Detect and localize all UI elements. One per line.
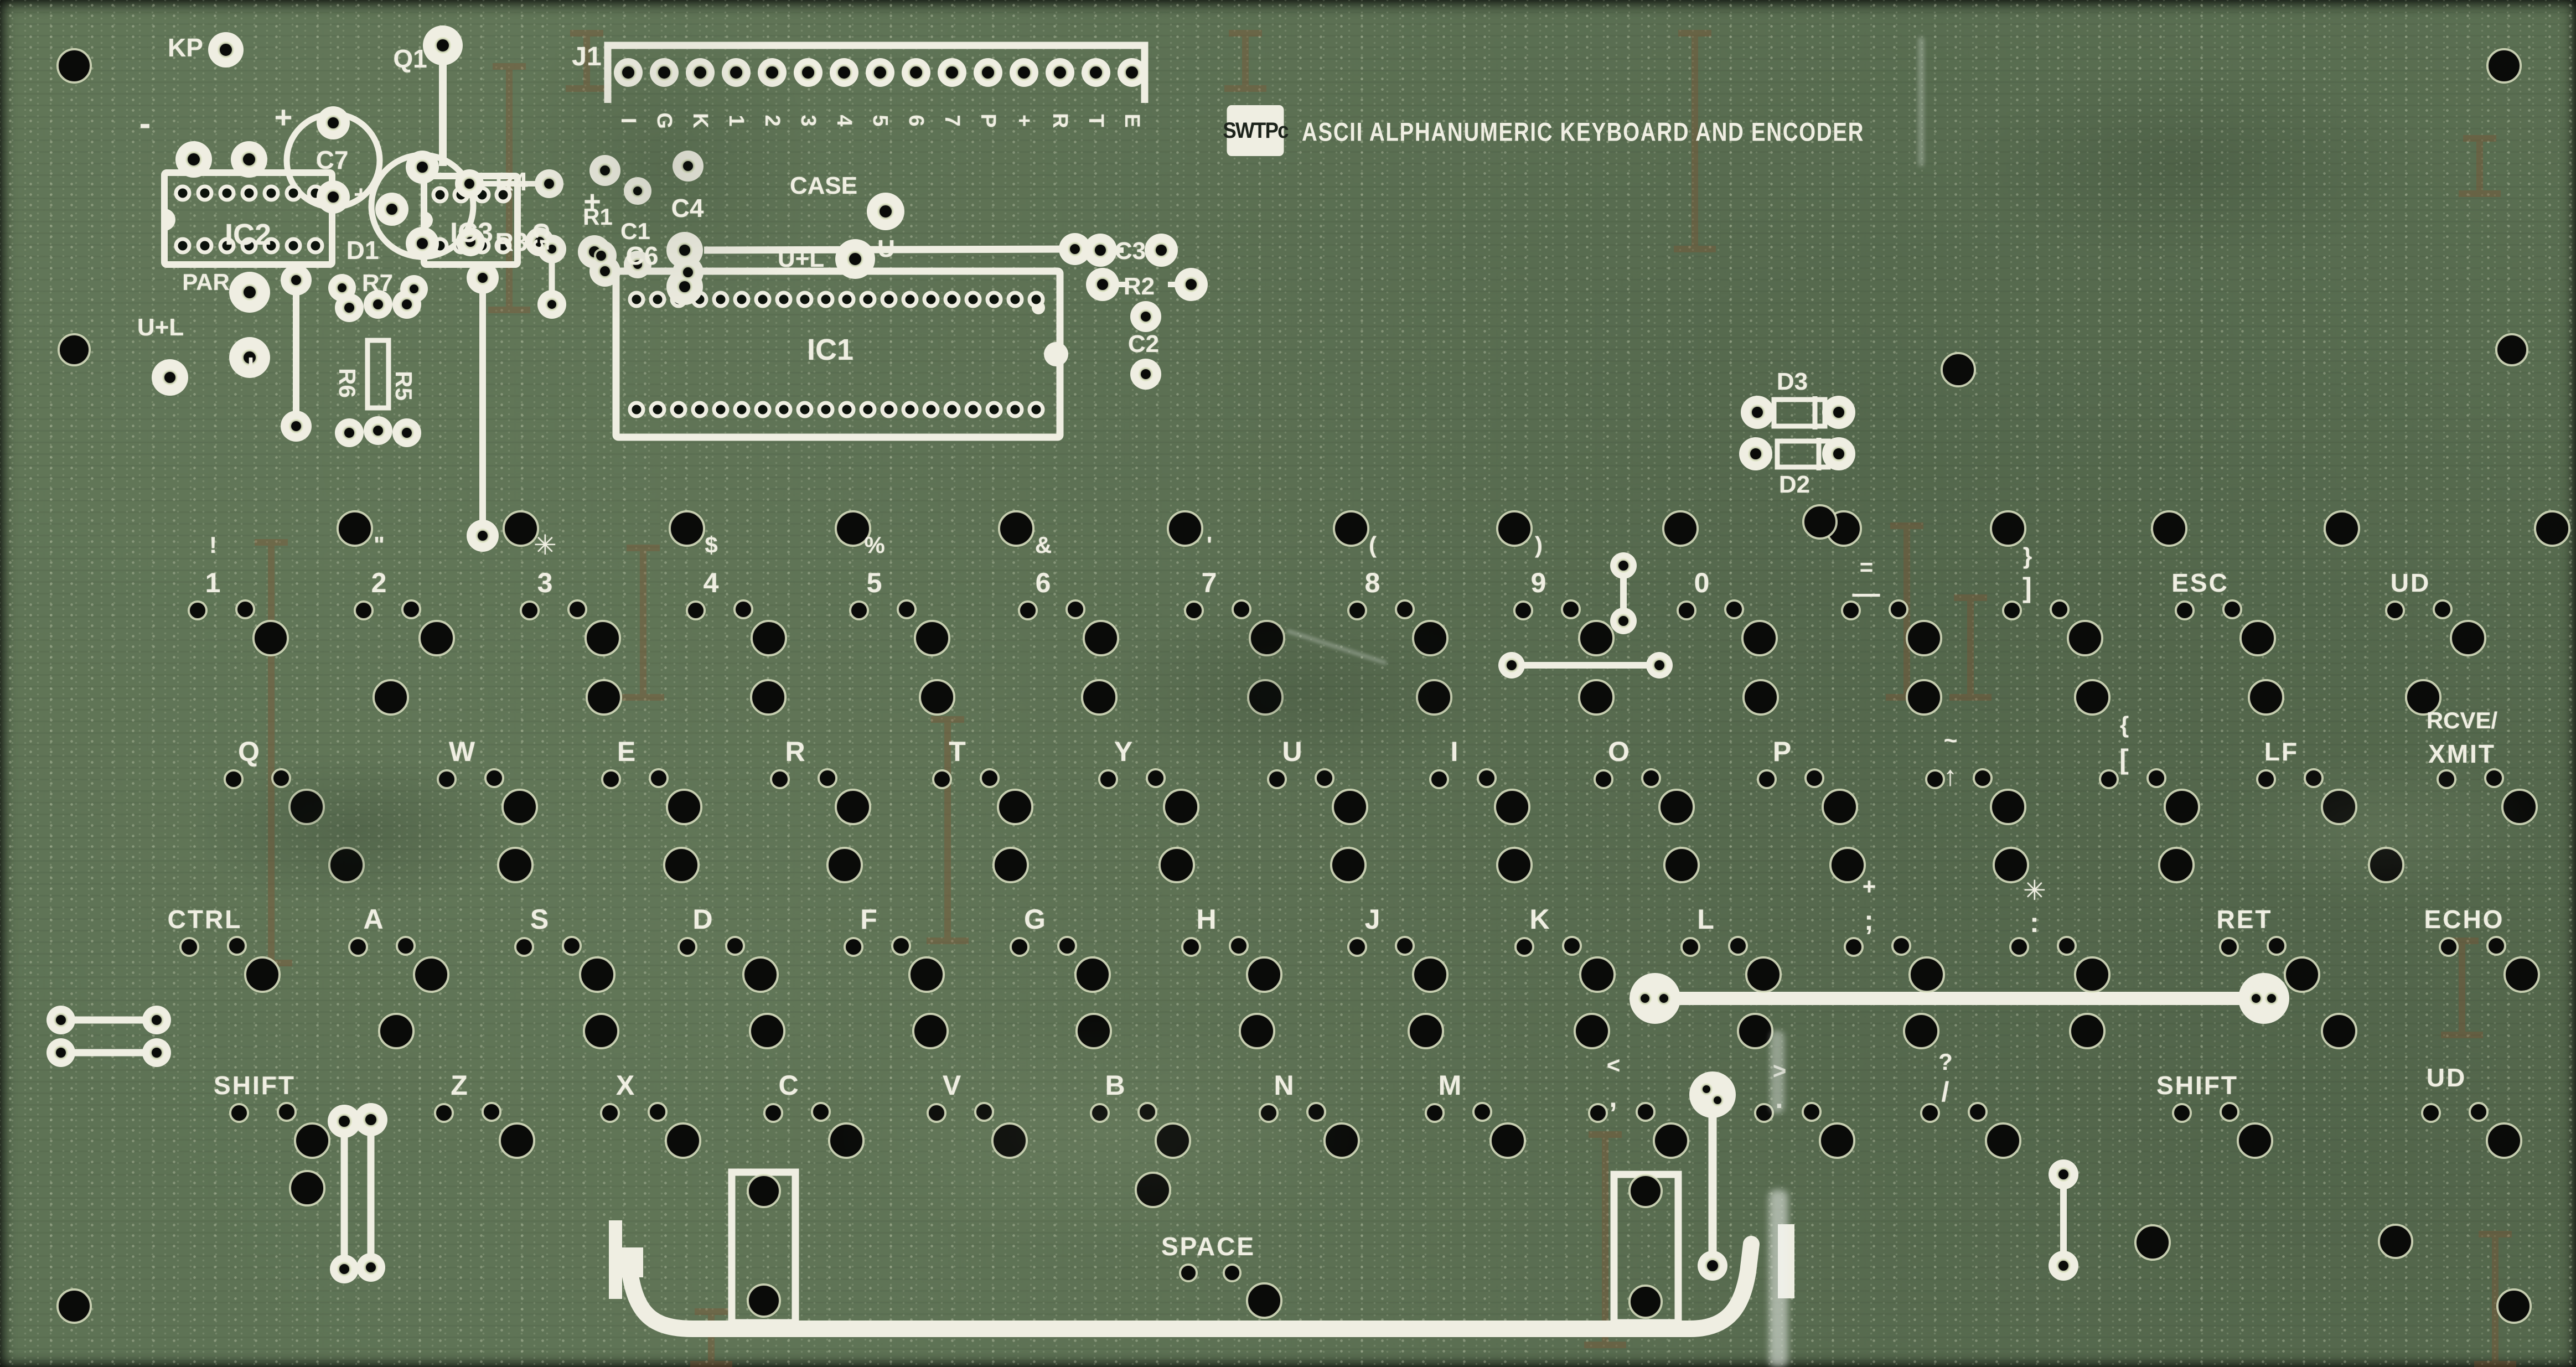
drill-hole <box>2285 957 2319 992</box>
drill-hole <box>2057 1168 2070 1180</box>
ic-pin-pad <box>198 239 211 252</box>
key-shift-symbol-6: & <box>1035 534 1052 557</box>
key-label-F: F <box>860 905 878 933</box>
drill-hole <box>436 38 450 53</box>
drill-hole <box>242 285 257 299</box>
ic-pin-pad <box>861 403 875 416</box>
drill-hole <box>503 790 537 824</box>
drill-hole <box>1506 659 1518 671</box>
drill-hole <box>2057 1260 2070 1272</box>
key-label-W: W <box>449 738 475 765</box>
key-label-9: 9 <box>1531 569 1547 597</box>
key-shift-symbol-;: + <box>1863 875 1876 898</box>
drill-hole <box>878 204 893 219</box>
drill-hole <box>2257 770 2275 788</box>
silkscreen-label-minus-mark: - <box>139 107 151 141</box>
key-shift-symbol-:: ✳ <box>2023 877 2046 904</box>
drill-hole <box>845 938 862 956</box>
drill-hole <box>1396 600 1414 618</box>
drill-hole <box>1823 790 1857 824</box>
j1-pin-label-4: 4 <box>834 115 855 126</box>
drill-hole <box>748 1285 780 1317</box>
ic-pin-pad <box>861 293 875 306</box>
drill-hole <box>599 164 611 177</box>
drill-hole <box>1725 600 1743 618</box>
drill-hole <box>649 1103 666 1121</box>
drill-hole <box>58 49 91 82</box>
drill-hole <box>1742 621 1777 655</box>
drill-hole <box>2505 957 2539 992</box>
drill-hole <box>416 160 429 174</box>
ic-pin-pad <box>777 403 790 416</box>
drill-hole <box>416 237 429 250</box>
key-label-CTRL: CTRL <box>168 907 242 932</box>
solder-pad <box>1689 1071 1736 1118</box>
key-label-A: A <box>363 905 384 933</box>
ic-pin-pad <box>798 293 811 306</box>
ic-pin-pad <box>756 293 769 306</box>
drill-hole <box>1099 770 1117 788</box>
drill-hole <box>1942 353 1975 386</box>
drill-hole <box>1563 937 1581 955</box>
silkscreen-label-c1: C1 <box>620 220 650 243</box>
copper-ghost-trace <box>1224 33 1266 89</box>
drill-hole <box>1250 621 1284 655</box>
ic-pin-pad <box>987 403 1001 416</box>
key-label-SHIFT: SHIFT <box>2156 1073 2238 1098</box>
drill-hole <box>2325 511 2359 546</box>
drill-hole <box>1663 511 1698 546</box>
drill-hole <box>521 602 539 619</box>
key-label-D: D <box>692 905 713 933</box>
drill-hole <box>242 152 256 167</box>
drill-hole <box>1580 957 1615 992</box>
drill-hole <box>2135 1225 2170 1260</box>
key-shift-symbol-↑: ~ <box>1944 729 1958 752</box>
silkscreen-label-r6: R6 <box>335 368 359 398</box>
drill-hole <box>751 680 785 714</box>
drill-hole <box>666 1123 700 1158</box>
drill-hole <box>2051 600 2068 618</box>
drill-hole <box>2148 769 2165 787</box>
drill-hole <box>372 424 384 437</box>
board-title: ASCII ALPHANUMERIC KEYBOARD AND ENCODER <box>1302 117 1864 147</box>
key-label-—: — <box>1853 579 1881 607</box>
drill-hole <box>601 1104 619 1122</box>
solder-pads <box>46 25 2289 1283</box>
drill-hole <box>498 848 532 882</box>
drill-hole <box>928 1104 945 1122</box>
key-shift-symbol-XMIT: RCVE/ <box>2427 709 2497 732</box>
drill-hole <box>1991 790 2025 824</box>
key-label-SPACE: SPACE <box>1161 1234 1255 1259</box>
drill-hole <box>2434 600 2451 618</box>
drill-hole <box>1654 1123 1688 1158</box>
drill-hole <box>2241 621 2275 655</box>
drill-hole <box>2487 1123 2521 1158</box>
drill-hole <box>2003 602 2021 619</box>
key-shift-symbol-2: " <box>374 534 385 557</box>
drill-hole <box>1182 938 1200 956</box>
drill-hole <box>892 937 910 955</box>
drill-hole <box>1491 1123 1525 1158</box>
drill-hole <box>151 1014 163 1026</box>
silkscreen-label-c4: C4 <box>671 195 704 221</box>
ic3-notch <box>424 211 433 229</box>
drill-hole <box>2221 1103 2238 1121</box>
j1-pin-label-3: 3 <box>798 115 819 126</box>
silkscreen-label-c7: C7 <box>316 147 349 173</box>
drill-hole <box>1334 511 1368 546</box>
drill-hole <box>682 160 694 172</box>
drill-hole <box>1247 957 1281 992</box>
drill-hole <box>1495 790 1529 824</box>
drill-hole <box>1067 600 1084 618</box>
drill-hole <box>1682 938 1699 956</box>
drill-hole <box>829 1123 863 1158</box>
ic-pin-pad <box>1008 293 1022 306</box>
drill-hole <box>2152 511 2186 546</box>
silkscreen-label-ic2: IC2 <box>225 220 271 250</box>
drill-hole <box>2369 848 2403 882</box>
drill-hole <box>1348 938 1366 956</box>
drill-hole <box>580 957 614 992</box>
drill-hole <box>1755 1104 1773 1122</box>
drill-hole <box>245 957 280 992</box>
drill-hole <box>920 680 954 714</box>
drill-hole <box>2496 334 2527 365</box>
drill-hole <box>1089 65 1103 80</box>
drill-hole <box>1136 1173 1170 1207</box>
drill-hole <box>1333 790 1367 824</box>
key-label-R: R <box>785 738 805 765</box>
drill-hole <box>1260 1104 1277 1122</box>
drill-hole <box>994 848 1028 882</box>
key-shift-symbol-3: ✳ <box>534 531 557 559</box>
drill-hole <box>632 185 643 196</box>
drill-hole <box>848 252 862 266</box>
ic-pin-pad <box>309 239 322 252</box>
key-label-E: E <box>617 738 636 765</box>
key-label-SHIFT: SHIFT <box>214 1073 296 1098</box>
drill-hole <box>1749 447 1762 460</box>
ic-pin-pad <box>924 293 938 306</box>
silkscreen-label-c2: C2 <box>1128 332 1159 356</box>
j1-pin-label-K: K <box>690 113 711 128</box>
diode-d1-outline <box>368 340 389 408</box>
j1-pin-label-7: 7 <box>942 115 963 126</box>
drill-hole <box>2487 937 2505 955</box>
drill-hole <box>1630 1175 1662 1207</box>
silkscreen-label-c5: C5 <box>530 222 552 251</box>
drill-hole <box>602 770 620 788</box>
drill-hole <box>483 1103 500 1121</box>
drill-hole <box>1168 511 1202 546</box>
key-label-↑: ↑ <box>1943 762 1958 790</box>
drill-hole <box>1820 1123 1854 1158</box>
silkscreen-label-u-1: U <box>236 354 254 379</box>
ic-pin-pad <box>287 239 300 252</box>
key-label-Z: Z <box>451 1071 468 1099</box>
key-label-Q: Q <box>238 738 260 765</box>
drill-hole <box>2487 49 2521 82</box>
key-label-7: 7 <box>1202 569 1218 597</box>
drill-hole <box>1832 406 1845 419</box>
drill-hole <box>812 1103 830 1121</box>
drill-hole <box>151 1047 163 1059</box>
key-label-ESC: ESC <box>2171 570 2229 596</box>
silkscreen-label-r5: R5 <box>392 371 415 401</box>
ic-pin-pad <box>630 403 643 416</box>
drill-hole <box>1830 848 1865 882</box>
key-label-LF: LF <box>2264 739 2299 764</box>
drill-hole <box>420 621 454 655</box>
ic-pin-pad <box>966 403 980 416</box>
drill-hole <box>272 769 290 787</box>
drill-hole <box>163 371 177 384</box>
drill-hole <box>729 65 743 80</box>
drill-hole <box>726 937 744 955</box>
drill-hole <box>2223 600 2241 618</box>
drill-hole <box>1758 770 1776 788</box>
drill-hole <box>909 65 923 80</box>
drill-hole <box>667 790 701 824</box>
drill-hole <box>327 116 340 130</box>
silkscreen-label-ic1: IC1 <box>807 335 854 365</box>
drill-hole <box>180 938 198 956</box>
drill-hole <box>2268 937 2285 955</box>
drill-hole <box>290 1171 324 1205</box>
key-shift-symbol-,: < <box>1607 1054 1621 1077</box>
drill-hole <box>1019 602 1037 619</box>
copper-ghost-trace <box>690 1312 732 1364</box>
drill-hole <box>2470 1103 2487 1121</box>
drill-hole <box>2058 937 2076 955</box>
drill-hole <box>1497 511 1532 546</box>
key-shift-symbol-]: } <box>2023 545 2032 568</box>
drill-hole <box>1803 1103 1820 1121</box>
ic-pin-pad <box>777 293 790 306</box>
drill-hole <box>1832 447 1845 460</box>
ic-pin-pad <box>903 293 917 306</box>
drill-hole <box>898 600 915 618</box>
drill-hole <box>1713 1095 1722 1105</box>
drill-hole <box>1091 1104 1109 1122</box>
ic-pin-pad <box>176 239 189 252</box>
drill-hole <box>1011 938 1028 956</box>
key-label-Y: Y <box>1114 738 1133 765</box>
drill-hole <box>2305 769 2322 787</box>
drill-hole <box>2485 769 2503 787</box>
drill-hole <box>385 203 399 216</box>
drill-hole <box>1678 602 1695 619</box>
key-label-P: P <box>1773 738 1792 765</box>
j1-pin-label-T: T <box>1085 114 1106 127</box>
silkscreen-label-c7-plus: + <box>354 183 368 207</box>
ic-pin-pad <box>176 187 189 200</box>
drill-hole <box>1706 1259 1719 1272</box>
j1-pin-label-1: 1 <box>726 115 747 126</box>
silkscreen-label-r7: R7 <box>362 271 393 296</box>
key-shift-symbol-[: { <box>2120 713 2129 737</box>
drill-hole <box>365 1261 377 1273</box>
drill-hole <box>2438 770 2455 788</box>
drill-hole <box>2502 790 2537 824</box>
drill-hole <box>1595 770 1612 788</box>
ic-pin-pad <box>882 403 896 416</box>
drill-hole <box>1155 244 1168 257</box>
drill-hole <box>998 790 1032 824</box>
spacebar-tab-left <box>609 1220 622 1299</box>
drill-hole <box>485 769 503 787</box>
key-label-J: J <box>1365 905 1381 933</box>
drill-hole <box>586 621 620 655</box>
drill-hole <box>290 274 302 286</box>
drill-hole <box>1639 993 1651 1004</box>
drill-hole <box>584 1014 618 1048</box>
drill-hole <box>563 937 581 955</box>
drill-hole <box>568 600 586 618</box>
drill-hole <box>1248 680 1282 714</box>
j1-pin-label-P: P <box>977 113 999 127</box>
silkscreen-label-r3: R3 <box>495 229 528 255</box>
copper-ghost-trace <box>622 548 664 697</box>
drill-hole <box>1845 938 1863 956</box>
drill-hole <box>408 283 420 294</box>
key-label-1: 1 <box>205 569 221 597</box>
drill-hole <box>349 938 367 956</box>
drill-hole <box>1096 278 1109 291</box>
drill-hole <box>189 602 206 619</box>
drill-hole <box>1147 769 1165 787</box>
drill-hole <box>1478 769 1496 787</box>
drill-hole <box>477 272 489 284</box>
key-label-L: L <box>1697 905 1715 933</box>
drill-hole <box>945 65 959 80</box>
drill-hole <box>329 848 364 882</box>
ic-pin-pad <box>819 403 832 416</box>
key-label-/: / <box>1942 1078 1950 1106</box>
drill-hole <box>1806 769 1823 787</box>
key-label-V: V <box>943 1071 961 1099</box>
drill-hole <box>909 957 944 992</box>
key-label-8: 8 <box>1365 569 1381 597</box>
silkscreen-label-d3: D3 <box>1777 370 1808 394</box>
ic-pin-pad <box>756 403 769 416</box>
silkscreen-label-u-plus-l-1: U+L <box>137 315 184 340</box>
drill-hole <box>2010 938 2028 956</box>
drill-hole <box>1224 1265 1240 1281</box>
drill-hole <box>414 957 448 992</box>
drill-hole <box>915 621 949 655</box>
drill-hole <box>1921 1104 1939 1122</box>
drill-hole <box>1413 957 1447 992</box>
drill-hole <box>1892 937 1910 955</box>
drill-hole <box>752 621 786 655</box>
drill-hole <box>1233 600 1250 618</box>
key-label-U: U <box>1282 738 1302 765</box>
drill-hole <box>1185 602 1203 619</box>
drill-hole <box>1986 1123 2020 1158</box>
drill-hole <box>372 298 384 310</box>
silkscreen-label-q1: Q1 <box>393 46 427 71</box>
j1-pin-label-G: G <box>654 112 675 129</box>
key-label-T: T <box>949 738 966 765</box>
drill-hole <box>1426 1104 1444 1122</box>
drill-hole <box>477 530 489 542</box>
drill-hole <box>1156 1123 1190 1158</box>
drill-hole <box>933 770 951 788</box>
drill-hole <box>1803 505 1837 538</box>
drill-hole <box>1630 1286 1662 1318</box>
j1-pin-label-2: 2 <box>762 115 783 126</box>
drill-hole <box>678 244 691 257</box>
drill-hole <box>2497 1290 2531 1323</box>
drill-hole <box>664 848 699 882</box>
key-label-]: ] <box>2022 574 2032 602</box>
key-label-X: X <box>616 1071 635 1099</box>
drill-hole <box>401 427 413 439</box>
drill-hole <box>1084 621 1118 655</box>
j1-pin-label-E: E <box>1121 113 1142 127</box>
drill-hole <box>55 1047 67 1059</box>
drill-hole <box>2075 957 2109 992</box>
drill-hole <box>1910 957 1944 992</box>
drill-hole <box>913 1014 948 1048</box>
key-shift-symbol-1: ! <box>209 534 217 557</box>
drill-hole <box>379 1014 413 1048</box>
drill-hole <box>981 65 995 80</box>
drill-hole <box>734 600 752 618</box>
drill-hole <box>1331 848 1365 882</box>
drill-hole <box>2070 1014 2104 1048</box>
drill-hole <box>679 938 696 956</box>
drill-hole <box>290 420 302 432</box>
drill-hole <box>1140 310 1152 323</box>
drill-hole <box>1240 1014 1274 1048</box>
key-label-G: G <box>1024 905 1046 933</box>
key-label-;: ; <box>1864 907 1874 934</box>
drill-hole <box>327 190 340 204</box>
key-label-B: B <box>1105 1071 1125 1099</box>
ic-pin-pad <box>433 188 447 201</box>
ic-pin-pad <box>798 403 811 416</box>
drill-hole <box>693 65 707 80</box>
ic-pin-pad <box>714 293 727 306</box>
drill-hole <box>1890 600 1907 618</box>
drill-hole <box>2440 938 2458 956</box>
ic-pin-pad <box>945 293 959 306</box>
pcb-board: SWTPc ASCII ALPHANUMERIC KEYBOARD AND EN… <box>0 0 2576 1367</box>
drill-hole <box>670 511 704 546</box>
drill-hole <box>771 770 789 788</box>
silkscreen-label-u-2: U <box>877 237 895 261</box>
drill-hole <box>1017 65 1031 80</box>
drill-hole <box>2176 602 2194 619</box>
j1-pin-label-5: 5 <box>870 115 891 126</box>
drill-hole <box>187 152 201 167</box>
drill-hole <box>764 1104 782 1122</box>
drill-hole <box>338 511 372 546</box>
ic-pin-pad <box>651 403 664 416</box>
drill-hole <box>1077 1014 1111 1048</box>
drill-hole <box>463 178 475 190</box>
drill-hole <box>827 848 862 882</box>
silkscreen-label-d2: D2 <box>1779 473 1810 497</box>
silkscreen-label-r2: R2 <box>1124 275 1155 299</box>
drill-hole <box>364 1113 377 1126</box>
drill-hole <box>2322 790 2356 824</box>
